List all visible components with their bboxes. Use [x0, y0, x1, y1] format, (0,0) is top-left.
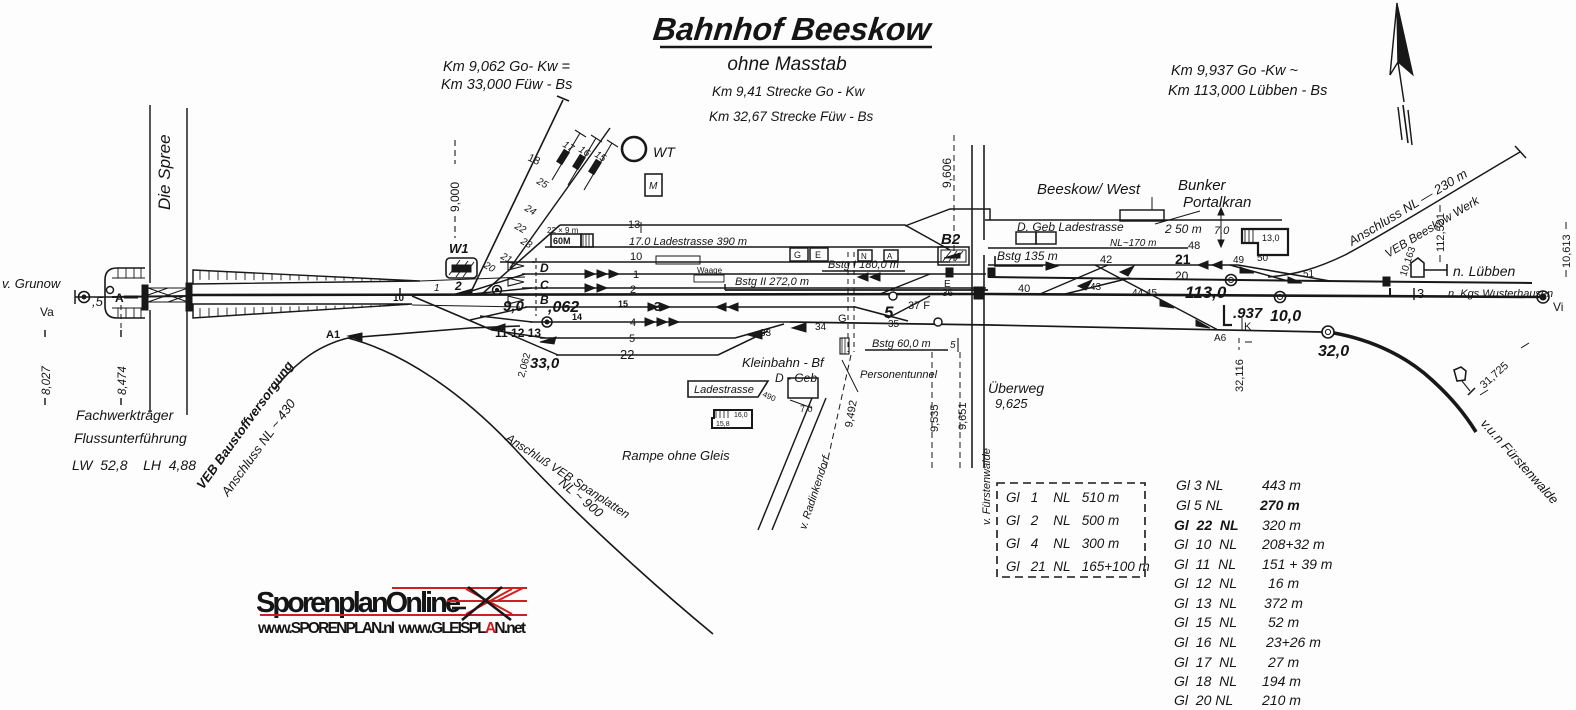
svg-text:Die Spree: Die Spree: [155, 134, 174, 210]
svg-text:8,474: 8,474: [117, 366, 129, 395]
svg-text:v.u.n Fürstenwalde: v.u.n Fürstenwalde: [1478, 416, 1562, 507]
svg-text:208+32 m: 208+32 m: [1261, 536, 1325, 552]
svg-text:320 m: 320 m: [1262, 517, 1301, 533]
svg-text:60M: 60M: [553, 236, 571, 246]
svg-text:270 m: 270 m: [1259, 497, 1300, 513]
svg-text:,5: ,5: [92, 294, 104, 309]
svg-text:Personentunnel: Personentunnel: [860, 369, 938, 381]
svg-text:Gl 21 NL 165+100 m: Gl 21 NL 165+100 m: [1006, 559, 1150, 574]
svg-text:v. Fürstenwalde: v. Fürstenwalde: [981, 448, 993, 525]
svg-text:9,0: 9,0: [503, 298, 525, 315]
svg-text:A6: A6: [1214, 333, 1227, 344]
svg-text:Überweg: Überweg: [988, 379, 1044, 396]
svg-text:Gl 20 NL: Gl 20 NL: [1174, 692, 1233, 708]
svg-text:22: 22: [512, 221, 528, 237]
svg-text:Km 9,062 Go- Kw =: Km 9,062 Go- Kw =: [443, 59, 570, 75]
svg-text:Gl 15 NL: Gl 15 NL: [1174, 614, 1237, 630]
svg-text:Gl 5 NL: Gl 5 NL: [1176, 497, 1223, 513]
svg-text:10,0: 10,0: [1270, 308, 1301, 325]
svg-text:Beeskow/ West: Beeskow/ West: [1037, 181, 1141, 198]
svg-text:2: 2: [454, 279, 462, 293]
svg-text:35: 35: [888, 319, 900, 330]
svg-text:Gl 1 NL 510 m: Gl 1 NL 510 m: [1006, 490, 1119, 505]
svg-text:Gl 4 NL 300 m: Gl 4 NL 300 m: [1006, 536, 1119, 551]
svg-text:27 m: 27 m: [1267, 654, 1299, 670]
svg-text:2 50 m: 2 50 m: [1164, 222, 1202, 236]
svg-text:Km 32,67 Strecke Füw - Bs: Km 32,67 Strecke Füw - Bs: [709, 109, 874, 124]
svg-text:M: M: [649, 181, 658, 192]
svg-text:34: 34: [815, 322, 827, 333]
svg-text:Gl 2 NL 500 m: Gl 2 NL 500 m: [1006, 513, 1119, 528]
svg-text:9,625: 9,625: [995, 396, 1028, 411]
svg-text:G: G: [838, 313, 847, 325]
svg-text:Waage: Waage: [697, 266, 723, 275]
svg-text:23+26 m: 23+26 m: [1265, 634, 1321, 650]
svg-text:B2: B2: [941, 231, 961, 248]
svg-text:3: 3: [1417, 286, 1424, 301]
svg-text:1: 1: [434, 283, 440, 294]
svg-text:Km 113,000 Lübben - Bs: Km 113,000 Lübben - Bs: [1168, 83, 1327, 99]
svg-text:v. Radinkendorf: v. Radinkendorf: [797, 454, 832, 531]
svg-text:Ladestrasse: Ladestrasse: [694, 384, 754, 396]
svg-text:151 + 39 m: 151 + 39 m: [1262, 556, 1333, 572]
svg-text:Kleinbahn - Bf: Kleinbahn - Bf: [742, 355, 825, 370]
svg-text:Flussunterführung: Flussunterführung: [74, 430, 187, 446]
svg-text:VEB Beeskow Werk: VEB Beeskow Werk: [1382, 193, 1482, 261]
svg-text:112,521: 112,521: [1435, 213, 1447, 252]
svg-text:372 m: 372 m: [1264, 595, 1303, 611]
svg-text:9,492: 9,492: [843, 399, 860, 428]
svg-text:v. Grunow: v. Grunow: [2, 276, 62, 291]
svg-text:24: 24: [522, 203, 538, 219]
svg-text:20: 20: [1175, 269, 1189, 283]
svg-text:A: A: [115, 291, 124, 305]
svg-text:210 m: 210 m: [1261, 692, 1301, 708]
svg-text:40: 40: [1018, 283, 1030, 295]
svg-text:32,116: 32,116: [1234, 359, 1246, 392]
svg-text:9,000: 9,000: [448, 182, 462, 212]
svg-text:50: 50: [1257, 253, 1269, 264]
svg-text:Bstg 135 m: Bstg 135 m: [997, 249, 1058, 263]
svg-text:Bahnhof Beeskow: Bahnhof Beeskow: [651, 11, 934, 47]
svg-text:13,0: 13,0: [1262, 233, 1280, 243]
svg-text:Gl 12 NL: Gl 12 NL: [1174, 575, 1237, 591]
svg-text:11 12 13: 11 12 13: [495, 326, 541, 340]
svg-text:21: 21: [1175, 251, 1191, 267]
svg-text:9,535: 9,535: [929, 404, 941, 432]
svg-text:17.0 Ladestrasse 390 m: 17.0 Ladestrasse 390 m: [629, 236, 747, 248]
svg-text:44 45: 44 45: [1132, 288, 1157, 299]
svg-text:n. Lübben: n. Lübben: [1453, 263, 1515, 279]
svg-text:E: E: [815, 250, 821, 260]
svg-text:36: 36: [942, 288, 954, 299]
svg-text:15,8: 15,8: [716, 421, 730, 428]
svg-text:W1: W1: [449, 241, 469, 256]
svg-text:www.SPORENPLAN.nl www.GLEISPL: www.SPORENPLAN.nl www.GLEISPLAN.net: [257, 620, 526, 637]
svg-text:Km 9,41 Strecke Go - Kw: Km 9,41 Strecke Go - Kw: [712, 84, 866, 99]
svg-text:Gl 13 NL: Gl 13 NL: [1174, 595, 1237, 611]
svg-text:7.0: 7.0: [800, 404, 813, 414]
svg-text:5: 5: [950, 340, 956, 351]
svg-text:15: 15: [618, 299, 628, 309]
svg-text:Bstg I 180,0 m: Bstg I 180,0 m: [828, 259, 899, 271]
svg-text:K: K: [1244, 321, 1252, 333]
svg-text:9,651: 9,651: [957, 402, 969, 430]
svg-text:C: C: [540, 278, 549, 292]
svg-text:LW 52,8 LH 4,88: LW 52,8 LH 4,88: [72, 457, 196, 473]
svg-text:2: 2: [630, 284, 636, 296]
svg-text:1: 1: [633, 269, 639, 281]
svg-text:194 m: 194 m: [1262, 673, 1301, 689]
svg-text:5: 5: [629, 333, 635, 345]
svg-text:Gl 11 NL: Gl 11 NL: [1174, 556, 1236, 572]
svg-text:16,0: 16,0: [734, 412, 748, 419]
svg-text:18: 18: [526, 152, 542, 168]
svg-text:20: 20: [481, 260, 497, 276]
svg-text:42: 42: [1100, 254, 1112, 266]
svg-text:49: 49: [1233, 255, 1245, 266]
svg-text:Gl 17 NL: Gl 17 NL: [1174, 654, 1237, 670]
svg-text:113,0: 113,0: [1185, 283, 1227, 302]
svg-text:Bstg II 272,0 m: Bstg II 272,0 m: [735, 276, 809, 288]
svg-text:G: G: [794, 250, 801, 260]
svg-text:4: 4: [630, 317, 636, 329]
svg-text:Portalkran: Portalkran: [1183, 194, 1251, 211]
svg-text:10: 10: [630, 251, 642, 263]
svg-text:490: 490: [761, 390, 777, 404]
svg-text:.937: .937: [1233, 305, 1263, 322]
svg-text:33,0: 33,0: [530, 355, 560, 372]
svg-text:16 m: 16 m: [1268, 575, 1299, 591]
svg-text:Gl 16 NL: Gl 16 NL: [1174, 634, 1237, 650]
svg-text:14: 14: [572, 312, 582, 322]
svg-text:443 m: 443 m: [1262, 477, 1301, 493]
svg-text:10,613: 10,613: [1561, 234, 1573, 268]
svg-text:Km 9,937 Go -Kw ~: Km 9,937 Go -Kw ~: [1171, 63, 1298, 79]
svg-text:WT: WT: [653, 144, 676, 160]
svg-text:52 m: 52 m: [1268, 614, 1299, 630]
svg-text:Gl 3 NL: Gl 3 NL: [1176, 477, 1223, 493]
svg-text:Vi: Vi: [1553, 300, 1563, 314]
svg-text:Bunker: Bunker: [1178, 177, 1227, 194]
svg-text:Km 33,000 Füw - Bs: Km 33,000 Füw - Bs: [441, 77, 572, 93]
svg-text:25: 25: [534, 176, 550, 192]
svg-text:Gl 10 NL: Gl 10 NL: [1174, 536, 1237, 552]
svg-text:31,725: 31,725: [1478, 360, 1511, 391]
svg-text:D: D: [540, 261, 549, 275]
svg-text:13: 13: [628, 219, 640, 231]
svg-text:ohne Masstab: ohne Masstab: [727, 54, 846, 75]
svg-text:32,0: 32,0: [1318, 343, 1349, 360]
svg-text:22: 22: [620, 347, 634, 362]
svg-text:Gl 22 NL: Gl 22 NL: [1174, 517, 1239, 533]
svg-text:Rampe ohne Gleis: Rampe ohne Gleis: [622, 448, 730, 463]
svg-text:8,027: 8,027: [41, 366, 53, 395]
svg-text:9,606: 9,606: [940, 158, 954, 188]
svg-text:Gl 18 NL: Gl 18 NL: [1174, 673, 1237, 689]
svg-text:Va: Va: [40, 305, 54, 319]
svg-text:21: 21: [498, 251, 514, 267]
svg-text:A1: A1: [326, 329, 340, 341]
svg-text:Fachwerkträger: Fachwerkträger: [76, 407, 175, 423]
svg-text:Bstg 60,0 m: Bstg 60,0 m: [872, 338, 931, 350]
svg-text:7.0: 7.0: [1214, 225, 1230, 237]
